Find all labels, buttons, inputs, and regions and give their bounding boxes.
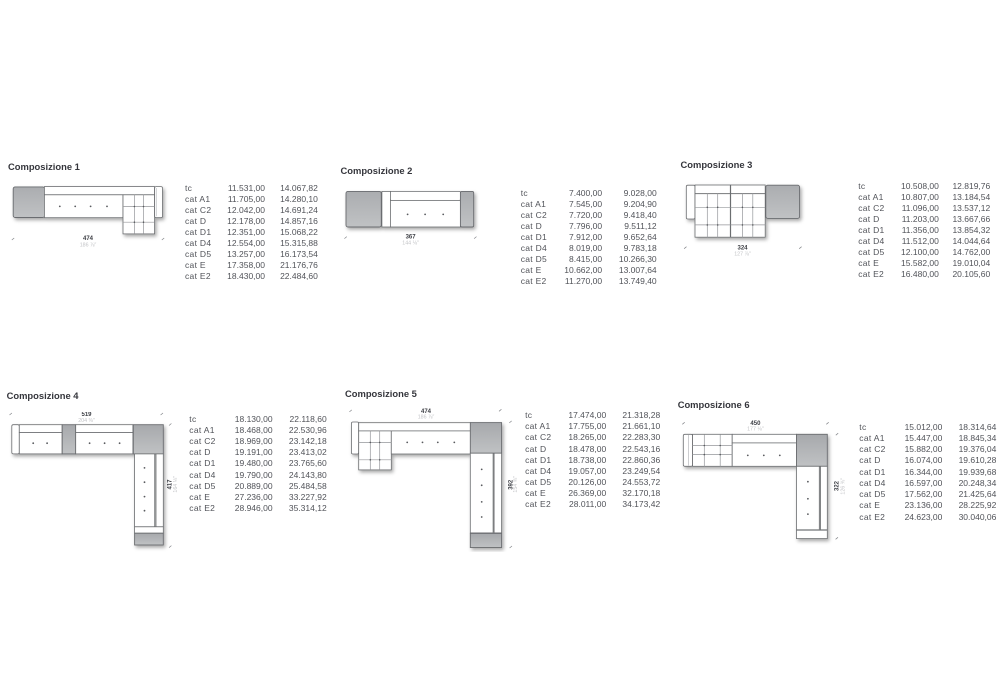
svg-text:127 ⅞″: 127 ⅞″	[734, 252, 751, 258]
svg-text:177 ⅛″: 177 ⅛″	[747, 427, 764, 433]
svg-text:164 ⅛″: 164 ⅛″	[173, 476, 179, 493]
svg-text:186 ⅞″: 186 ⅞″	[80, 242, 97, 248]
svg-text:154 ⅜″: 154 ⅜″	[513, 476, 519, 493]
svg-text:126 ⅜″: 126 ⅜″	[841, 478, 847, 495]
svg-text:186 ⅞″: 186 ⅞″	[418, 415, 435, 421]
svg-text:474: 474	[83, 236, 94, 242]
svg-text:144 ⅛″: 144 ⅛″	[402, 241, 419, 247]
svg-text:204 ⅜″: 204 ⅜″	[78, 418, 95, 424]
